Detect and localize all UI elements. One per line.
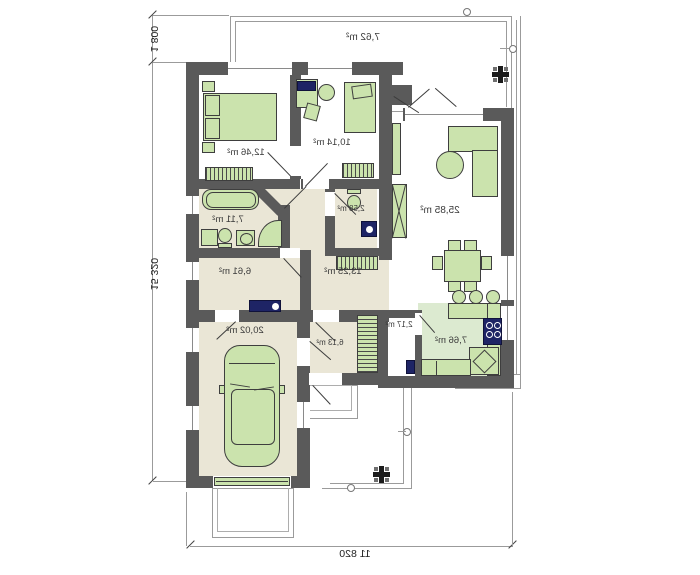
fireplace bbox=[392, 184, 407, 238]
bar-stool bbox=[486, 290, 500, 304]
pillow bbox=[351, 84, 373, 100]
driveway-inner bbox=[217, 488, 289, 532]
dimension-tick bbox=[186, 540, 194, 548]
dining-chair bbox=[432, 256, 443, 270]
dining-table bbox=[444, 250, 481, 282]
room-label-entry: 6,13 m² bbox=[300, 339, 360, 348]
window-room bbox=[308, 62, 352, 75]
terrace-inner-line bbox=[235, 21, 236, 62]
door-gap-bedroom bbox=[290, 146, 301, 176]
bathtub bbox=[202, 189, 259, 210]
window-kitchen bbox=[501, 306, 514, 340]
corner-sofa bbox=[448, 126, 498, 152]
kitchen-counter-bottom bbox=[421, 359, 471, 376]
dimension-label-width: 11 820 bbox=[320, 548, 390, 560]
downspout-icon bbox=[403, 428, 411, 436]
room-label-wc: 2,58 m² bbox=[321, 205, 381, 214]
room-label-hall: 13,25 m² bbox=[313, 267, 373, 277]
window-bathroom bbox=[186, 196, 199, 214]
bottom-dimension-line bbox=[190, 546, 513, 547]
coffee-table bbox=[436, 151, 464, 179]
bar-stool bbox=[452, 290, 466, 304]
left-dimension-line bbox=[152, 15, 153, 481]
wall-garage-right bbox=[297, 310, 310, 488]
downspout-tick bbox=[398, 431, 406, 432]
room-label-pantry: 2,17 m² bbox=[369, 321, 429, 330]
downspout-icon bbox=[347, 484, 355, 492]
floor-plan: 1 800 15 320 11 820 bbox=[0, 0, 700, 575]
door-gap-front-door bbox=[309, 373, 342, 385]
drain-cross-icon bbox=[492, 66, 509, 83]
window-garage-2 bbox=[186, 406, 199, 430]
extension-line bbox=[512, 392, 513, 546]
wardrobe bbox=[205, 167, 253, 181]
pantry-appliance bbox=[406, 360, 415, 374]
paving-line bbox=[330, 483, 404, 484]
washbasin bbox=[236, 230, 255, 246]
dimension-label-height: 15 320 bbox=[124, 264, 184, 284]
extension-line bbox=[153, 62, 186, 63]
paving-line bbox=[411, 388, 412, 489]
room-label-bedroom: 12,46 m² bbox=[216, 148, 276, 158]
window-garage-1 bbox=[186, 328, 199, 352]
garage-door bbox=[214, 477, 290, 486]
wall-center bbox=[379, 75, 392, 260]
eaves-line bbox=[516, 20, 517, 374]
paving-line bbox=[403, 388, 404, 484]
chair bbox=[318, 84, 335, 101]
downspout-tick bbox=[500, 48, 509, 49]
paving-line bbox=[322, 488, 412, 489]
downspout-icon bbox=[463, 8, 471, 16]
room-label-utility: 6,61 m² bbox=[205, 267, 265, 277]
wall-wc-bottom bbox=[325, 248, 389, 256]
room-label-living: 25,85 m² bbox=[408, 205, 472, 216]
pillow bbox=[205, 118, 220, 139]
car-mirror bbox=[279, 385, 285, 394]
door-gap-hall-entry bbox=[313, 310, 339, 322]
extension-line bbox=[153, 15, 229, 16]
corner-sofa bbox=[472, 150, 498, 197]
room-label-kitchen: 7,66 m² bbox=[421, 336, 481, 346]
room-label-room: 10,14 m² bbox=[302, 138, 362, 148]
car bbox=[224, 345, 280, 467]
extension-line bbox=[186, 492, 187, 546]
porch-step-inner bbox=[306, 385, 352, 411]
drain-cross-icon bbox=[373, 466, 390, 483]
extension-line bbox=[153, 481, 186, 482]
downspout-icon bbox=[509, 45, 517, 53]
window-utility bbox=[186, 262, 199, 280]
room-label-terrace: 7,62 m² bbox=[333, 32, 393, 43]
car-mirror bbox=[219, 385, 225, 394]
dimension-label-terrace-depth: 1 800 bbox=[132, 29, 176, 49]
nightstand bbox=[202, 81, 215, 92]
terrace-inner-line bbox=[235, 21, 507, 22]
corner-sink bbox=[469, 347, 499, 375]
window-bedroom bbox=[228, 62, 292, 75]
room-label-garage: 20,02 m² bbox=[215, 326, 275, 336]
wall-top bbox=[186, 62, 403, 75]
computer bbox=[297, 81, 316, 91]
door-gap-utility-garage bbox=[215, 310, 239, 322]
washbasin bbox=[361, 221, 377, 237]
dining-chair bbox=[481, 256, 492, 270]
shelf bbox=[392, 123, 401, 175]
toilet bbox=[218, 228, 232, 243]
door-gap-utility bbox=[280, 248, 300, 258]
wardrobe bbox=[342, 163, 374, 178]
washing-machine bbox=[201, 229, 218, 246]
stove bbox=[483, 318, 502, 345]
wall-right bbox=[501, 108, 514, 388]
room-label-bathroom: 7,11 m² bbox=[198, 215, 258, 225]
terrace-inner-line bbox=[506, 21, 507, 107]
toilet-tank bbox=[347, 189, 361, 194]
window-living bbox=[501, 256, 514, 300]
wall-kitchen-bottom bbox=[378, 376, 502, 388]
nightstand bbox=[202, 142, 215, 153]
boiler bbox=[249, 300, 281, 312]
toilet-tank bbox=[218, 243, 232, 248]
window-entry-side bbox=[297, 402, 310, 428]
bar-stool bbox=[469, 290, 483, 304]
pillow bbox=[205, 95, 220, 116]
eaves-line bbox=[520, 16, 521, 380]
